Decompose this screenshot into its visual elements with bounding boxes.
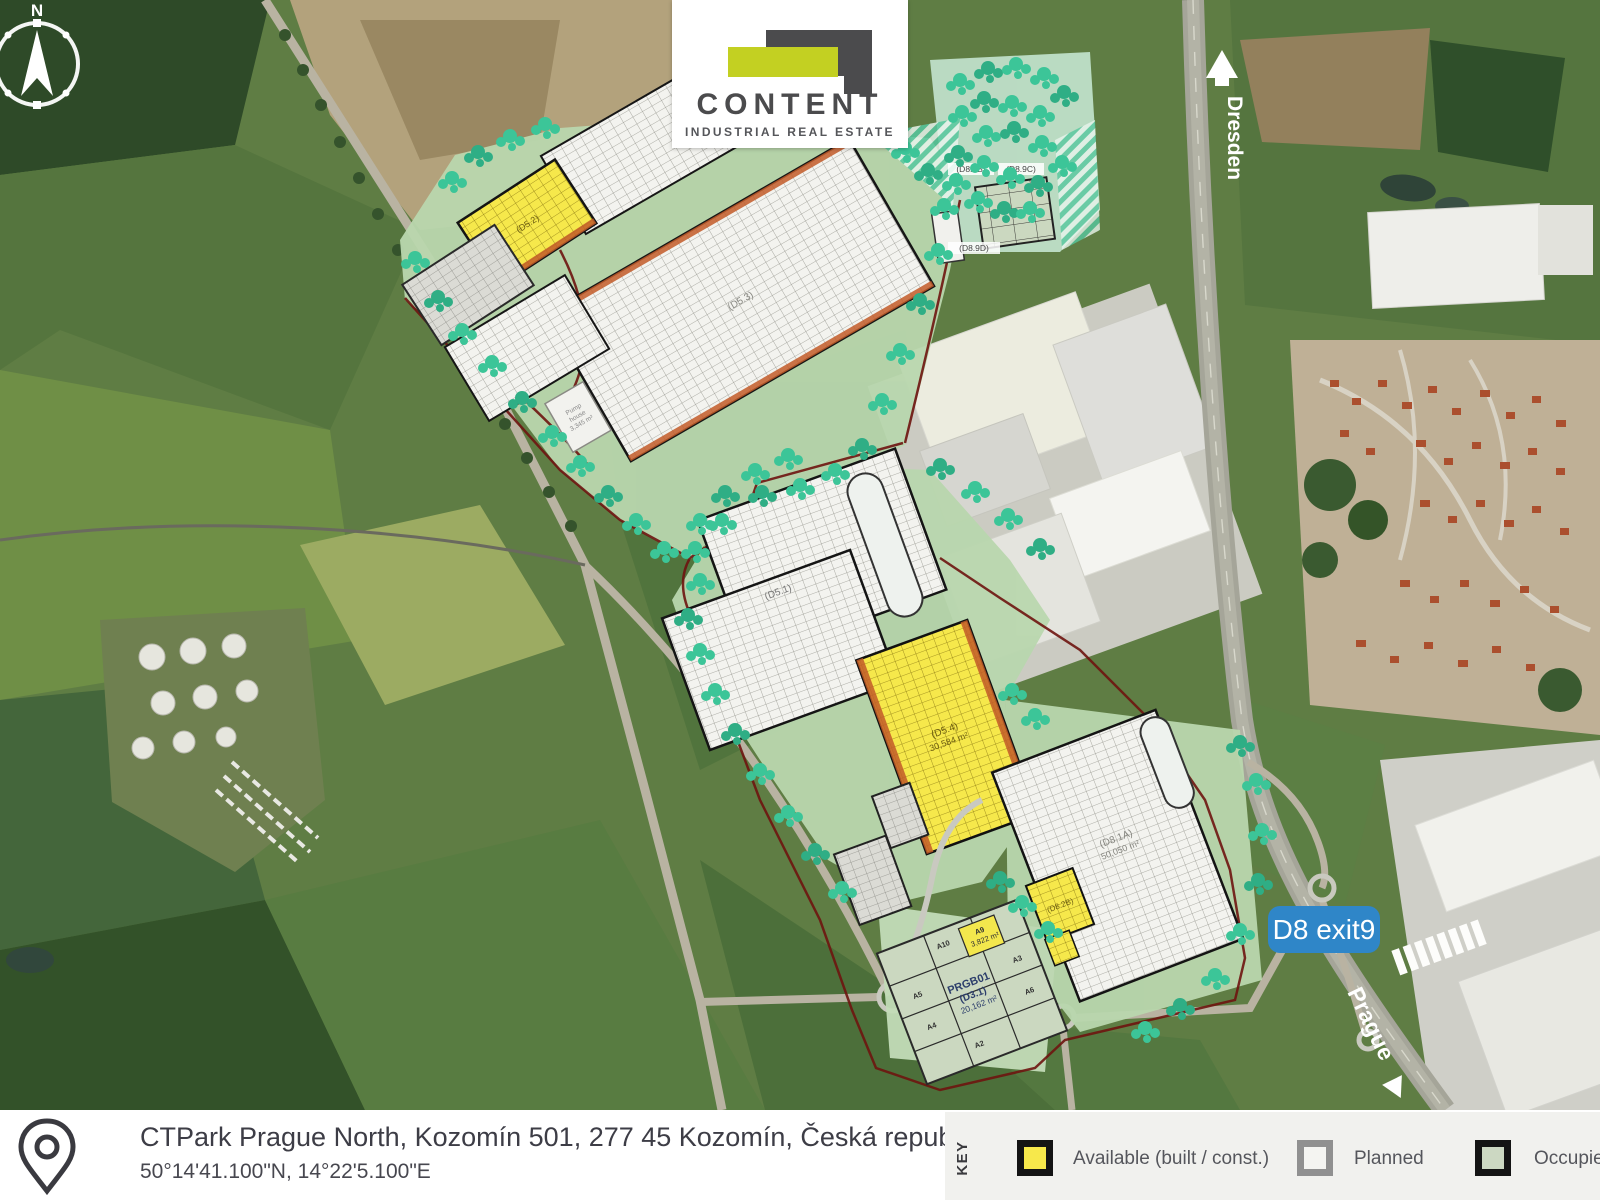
content-logo-icon — [672, 0, 908, 84]
logo-title: CONTENT — [672, 88, 908, 122]
legend-label-available: Available (built / const.) — [1073, 1148, 1269, 1170]
legend-label-occupied: Occupied ( — [1534, 1148, 1600, 1170]
parcel-label: (D8.9D) — [959, 243, 989, 253]
d8-exit9-badge: D8 exit9 — [1268, 906, 1380, 953]
legend-label-planned: Planned — [1354, 1148, 1424, 1170]
map-key-legend: KEY Available (built / const.) Planned O… — [945, 1112, 1600, 1200]
legend-swatch-available — [1017, 1140, 1053, 1176]
park-address: CTPark Prague North, Kozomín 501, 277 45… — [140, 1122, 994, 1153]
logo-subtitle: INDUSTRIAL REAL ESTATE — [672, 125, 908, 139]
compass-n-text: N — [31, 1, 43, 20]
aerial-map: (D5.3) (D5.2) Pump house 3,345 m² (D8.9B… — [0, 0, 1600, 1110]
legend-swatch-occupied — [1475, 1140, 1511, 1176]
content-logo: CONTENT INDUSTRIAL REAL ESTATE — [672, 0, 908, 148]
legend-swatch-planned — [1297, 1140, 1333, 1176]
location-pin-icon — [16, 1117, 78, 1195]
park-coordinates: 50°14'41.100"N, 14°22'5.100"E — [140, 1160, 431, 1184]
ctpark-site-map-page: { "logo": { "title": "CONTENT", "subtitl… — [0, 0, 1600, 1200]
legend-title: KEY — [940, 1143, 984, 1173]
dresden-text: Dresden — [1223, 96, 1246, 180]
d8-exit9-text: D8 exit9 — [1273, 914, 1376, 945]
